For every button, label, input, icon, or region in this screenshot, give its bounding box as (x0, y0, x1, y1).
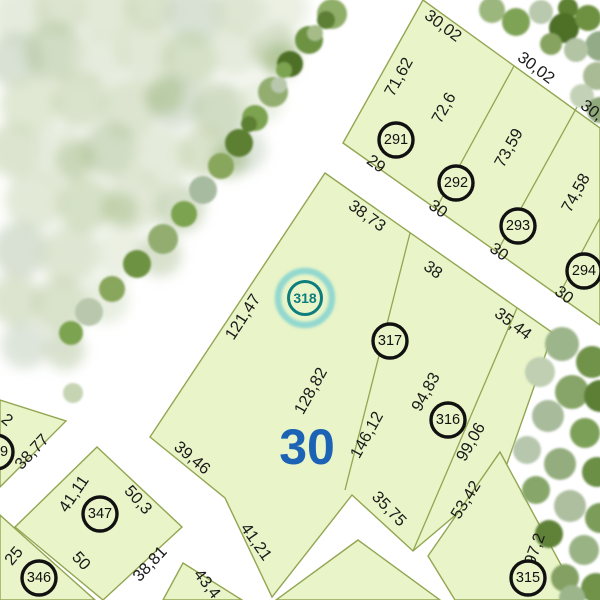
parcel-number-346[interactable]: 346 (22, 561, 56, 595)
parcel-number-label: 293 (506, 218, 530, 234)
parcel-number-294[interactable]: 294 (567, 254, 600, 288)
parcel-number-347[interactable]: 347 (83, 497, 117, 531)
parcel-number-label: 317 (378, 333, 402, 349)
parcel-number-317[interactable]: 317 (373, 324, 407, 358)
parcel-number-291[interactable]: 291 (379, 123, 413, 157)
parcel-number-label: 315 (516, 570, 540, 586)
parcel-number-315[interactable]: 315 (511, 561, 545, 595)
parcel-number-label: 316 (436, 412, 460, 428)
parcel-number-316[interactable]: 316 (431, 403, 465, 437)
parcel-number-label: 346 (27, 570, 51, 586)
parcel-number-label: 9 (0, 444, 8, 460)
parcel-number-label: 294 (572, 263, 596, 279)
parcel-number-293[interactable]: 293 (501, 209, 535, 243)
selected-parcel-number-label: 318 (293, 290, 317, 306)
block-number-label: 30 (279, 419, 335, 475)
parcel-number-label: 347 (88, 506, 112, 522)
map-canvas: 30,02 30,02 30,02 71,62 72,6 73,59 74,58… (0, 0, 600, 600)
parcel-number-label: 292 (444, 175, 468, 191)
parcel-number-label: 291 (384, 132, 408, 148)
cadastral-map: 30,02 30,02 30,02 71,62 72,6 73,59 74,58… (0, 0, 600, 600)
parcel-number-292[interactable]: 292 (439, 166, 473, 200)
